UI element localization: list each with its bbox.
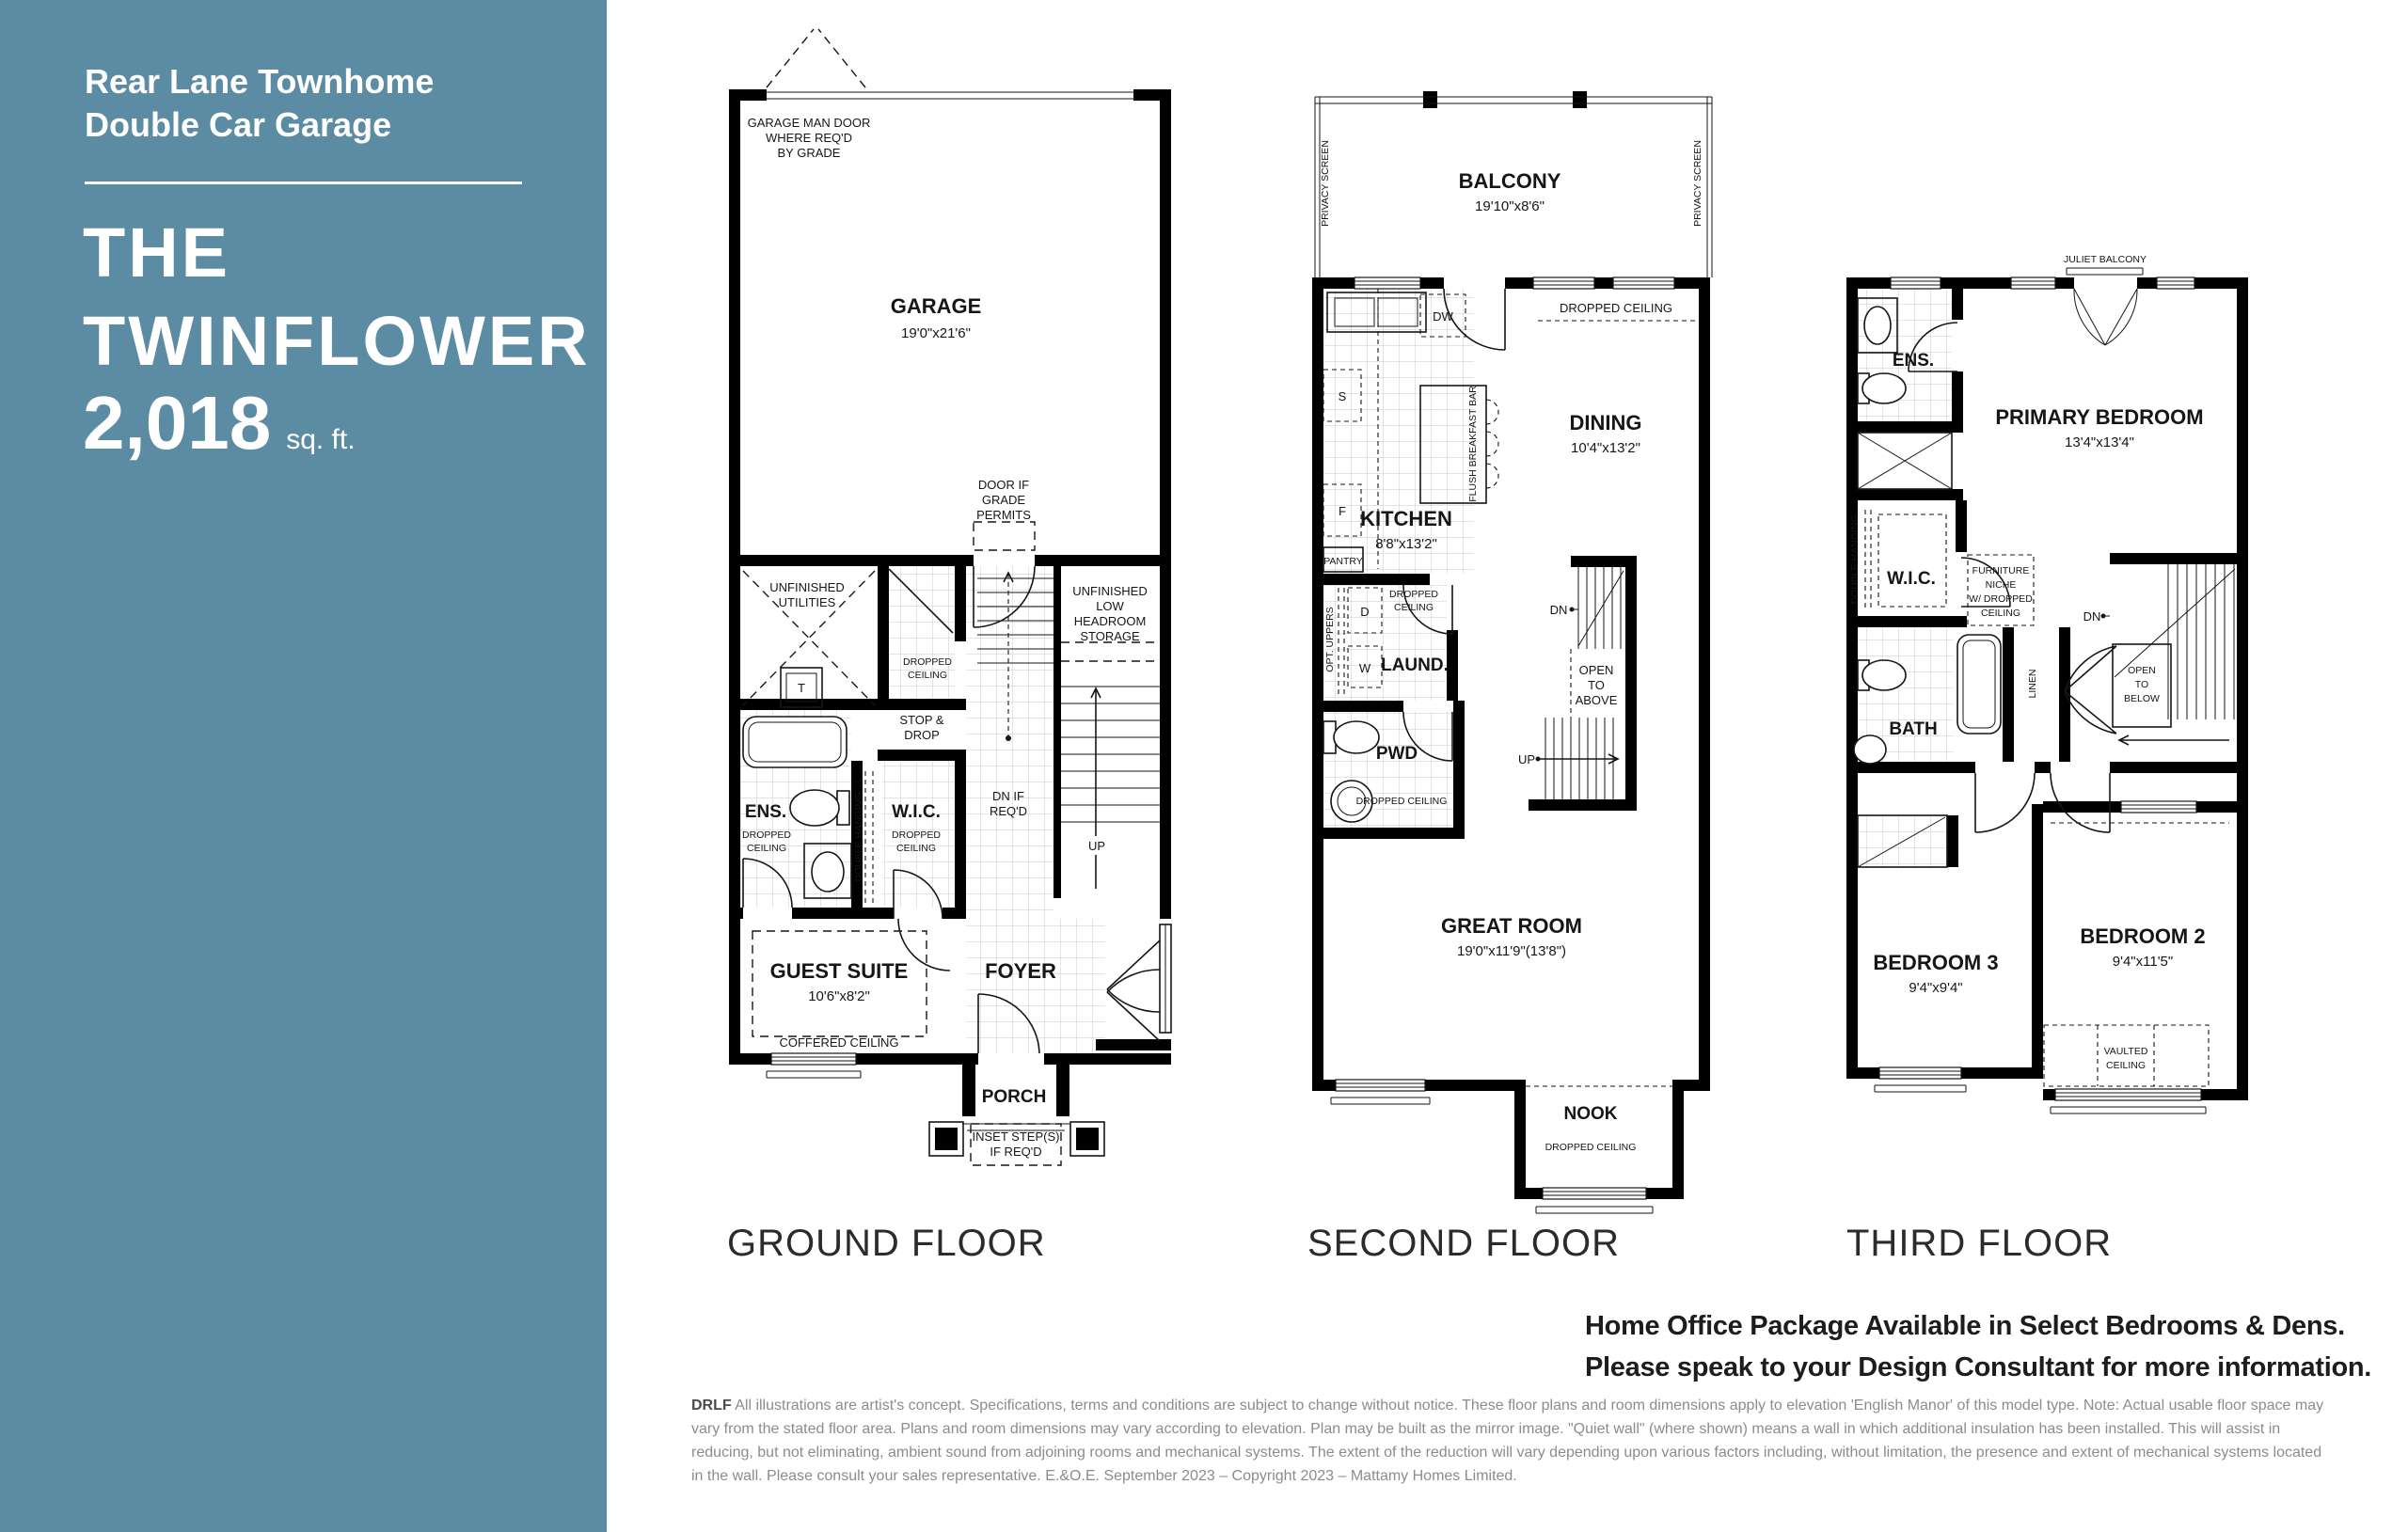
disclaimer-code: DRLF [691, 1398, 732, 1414]
tank-label: T [798, 681, 805, 695]
dn-label: DN [2083, 609, 2101, 624]
garage-label: GARAGE [891, 294, 982, 318]
divider [85, 182, 522, 184]
svg-text:CEILING: CEILING [908, 670, 947, 681]
third-floor-caption: THIRD FLOOR [1846, 1223, 2112, 1265]
dn-label: DN [1550, 603, 1568, 617]
disclaimer-text: All illustrations are artist's concept. … [691, 1398, 2323, 1484]
vaulted-ceiling-label: VAULTED [2104, 1046, 2148, 1057]
dryer-label: D [1360, 605, 1369, 619]
model-name: THE TWINFLOWER [83, 209, 591, 386]
wic-label: W.I.C. [892, 802, 941, 822]
svg-text:DROP: DROP [904, 728, 940, 742]
ground-floor-caption: GROUND FLOOR [727, 1223, 1046, 1265]
bedroom3-dims: 9'4"x9'4" [1909, 980, 1962, 996]
dining-label: DINING [1570, 411, 1642, 434]
garage-man-door-note: GARAGE MAN DOOR [748, 116, 871, 130]
svg-text:BELOW: BELOW [2124, 693, 2160, 704]
linen-label: LINEN [2027, 670, 2038, 699]
dining-dropped-ceiling: DROPPED CEILING [1560, 301, 1672, 315]
bedroom3-label: BEDROOM 3 [1873, 951, 1998, 974]
svg-text:CEILING: CEILING [747, 843, 786, 854]
storage-label: UNFINISHED [1072, 584, 1147, 598]
svg-text:CEILING: CEILING [1394, 602, 1434, 613]
pwd-label: PWD [1376, 744, 1418, 764]
foyer-label: FOYER [985, 959, 1056, 983]
privacy-screen-left: PRIVACY SCREEN [1320, 140, 1331, 227]
product-type-line1: Rear Lane Townhome [85, 60, 434, 103]
stove-label: S [1339, 389, 1347, 403]
square-footage: 2,018 sq. ft. [83, 380, 356, 466]
coffered-ceiling-label: COFFERED CEILING [779, 1035, 898, 1050]
second-floor-plan: PRIVACY SCREEN PRIVACY SCREEN BALCONY 19… [1303, 89, 1768, 1227]
sqft-unit: sq. ft. [286, 424, 355, 456]
furniture-niche-label: FURNITURE [1972, 565, 2030, 576]
product-type-line2: Double Car Garage [85, 103, 434, 147]
pantry-label: PANTRY [1323, 556, 1363, 567]
dn-if-reqd-label: DN IF [992, 789, 1024, 803]
nook-label: NOOK [1564, 1104, 1618, 1124]
balcony-dims: 19'10"x8'6" [1475, 198, 1545, 214]
svg-text:PERMITS: PERMITS [976, 508, 1031, 522]
stop-drop-label: STOP & [899, 713, 944, 727]
ens-dropped-ceiling: DROPPED [742, 829, 791, 841]
breakfast-bar-label: FLUSH BREAKFAST BAR [1467, 386, 1479, 502]
juliet-balcony-label: JULIET BALCONY [2064, 254, 2147, 265]
sidebar: Rear Lane Townhome Double Car Garage THE… [0, 0, 607, 1532]
svg-text:TO: TO [1588, 678, 1605, 692]
svg-text:IF REQ'D: IF REQ'D [990, 1145, 1041, 1159]
fridge-label: F [1339, 504, 1346, 518]
utilities-label: UNFINISHED [769, 580, 844, 594]
svg-text:LOW: LOW [1096, 599, 1124, 613]
svg-text:CEILING: CEILING [2106, 1060, 2146, 1071]
svg-text:BY GRADE: BY GRADE [778, 146, 841, 160]
opt-uppers-label: OPT. UPPERS [1324, 607, 1336, 671]
svg-text:STORAGE: STORAGE [1080, 629, 1140, 643]
svg-text:W/ DROPPED: W/ DROPPED [1969, 593, 2033, 605]
svg-text:GRADE: GRADE [982, 493, 1026, 507]
kitchen-label: KITCHEN [1360, 507, 1452, 530]
up-label: UP [1518, 752, 1535, 766]
inset-steps-label: INSET STEP(S) [973, 1129, 1060, 1144]
bath-label: BATH [1889, 719, 1937, 739]
porch-label: PORCH [982, 1087, 1047, 1107]
pwd-dropped-ceiling: DROPPED CEILING [1356, 796, 1448, 807]
great-room-dims: 19'0"x11'9"(13'8") [1457, 943, 1566, 959]
bedroom2-dims: 9'4"x11'5" [2113, 954, 2173, 970]
brochure-page: Rear Lane Townhome Double Car Garage THE… [0, 0, 2408, 1532]
svg-text:TO: TO [2135, 679, 2148, 690]
primary-bedroom-dims: 13'4"x13'4" [2065, 434, 2134, 450]
open-to-below-label: OPEN [2128, 665, 2156, 676]
svg-text:WHERE REQ'D: WHERE REQ'D [766, 131, 852, 145]
kitchen-dims: 8'8"x13'2" [1375, 536, 1437, 552]
great-room-label: GREAT ROOM [1441, 914, 1582, 938]
double-hanging-label: DOUBLE HANGING [853, 792, 864, 881]
svg-text:ABOVE: ABOVE [1576, 693, 1618, 707]
wic-label: W.I.C. [1887, 569, 1936, 589]
legal-disclaimer: DRLF All illustrations are artist's conc… [691, 1394, 2336, 1488]
laundry-label: LAUND. [1381, 655, 1449, 675]
closet-dropped-ceiling: DROPPED [903, 656, 952, 668]
home-office-line2: Please speak to your Design Consultant f… [1585, 1347, 2371, 1388]
ens-label: ENS. [1893, 351, 1934, 371]
double-hanging-label: DOUBLE HANGING [1849, 514, 1861, 604]
washer-label: W [1359, 661, 1371, 675]
svg-text:NICHE: NICHE [1986, 579, 2017, 591]
bedroom2-label: BEDROOM 2 [2080, 924, 2205, 948]
privacy-screen-right: PRIVACY SCREEN [1692, 140, 1703, 227]
model-name-line2: TWINFLOWER [83, 297, 591, 386]
svg-text:HEADROOM: HEADROOM [1074, 614, 1147, 628]
dining-dims: 10'4"x13'2" [1571, 440, 1640, 456]
product-type: Rear Lane Townhome Double Car Garage [85, 60, 434, 147]
guest-suite-label: GUEST SUITE [770, 959, 909, 983]
open-to-above-label: OPEN [1579, 663, 1614, 677]
svg-text:CEILING: CEILING [1981, 608, 2020, 619]
svg-text:UTILITIES: UTILITIES [779, 595, 836, 609]
sqft-value: 2,018 [83, 380, 271, 466]
second-floor-caption: SECOND FLOOR [1307, 1223, 1620, 1265]
home-office-note: Home Office Package Available in Select … [1585, 1305, 2371, 1388]
primary-bedroom-label: PRIMARY BEDROOM [1995, 405, 2203, 429]
model-name-line1: THE [83, 209, 591, 297]
svg-text:CEILING: CEILING [896, 843, 936, 854]
wic-dropped-ceiling: DROPPED [892, 829, 941, 841]
up-label: UP [1088, 839, 1105, 853]
balcony-label: BALCONY [1459, 169, 1561, 193]
svg-text:REQ'D: REQ'D [990, 804, 1027, 818]
nook-dropped-ceiling: DROPPED CEILING [1545, 1142, 1637, 1153]
dishwasher-label: DW [1433, 309, 1453, 324]
ground-floor-plan: GARAGE MAN DOOR WHERE REQ'D BY GRADE GAR… [724, 14, 1185, 1227]
garage-dims: 19'0"x21'6" [901, 325, 971, 341]
home-office-line1: Home Office Package Available in Select … [1585, 1305, 2371, 1347]
third-floor-plan: JULIET BALCONY ENS. PRIMARY BEDROOM 13'4… [1834, 240, 2305, 1227]
guest-suite-dims: 10'6"x8'2" [808, 988, 870, 1004]
ens-label: ENS. [745, 802, 786, 822]
door-if-grade-note: DOOR IF [978, 478, 1029, 492]
laundry-dropped-ceiling: DROPPED [1389, 589, 1438, 600]
